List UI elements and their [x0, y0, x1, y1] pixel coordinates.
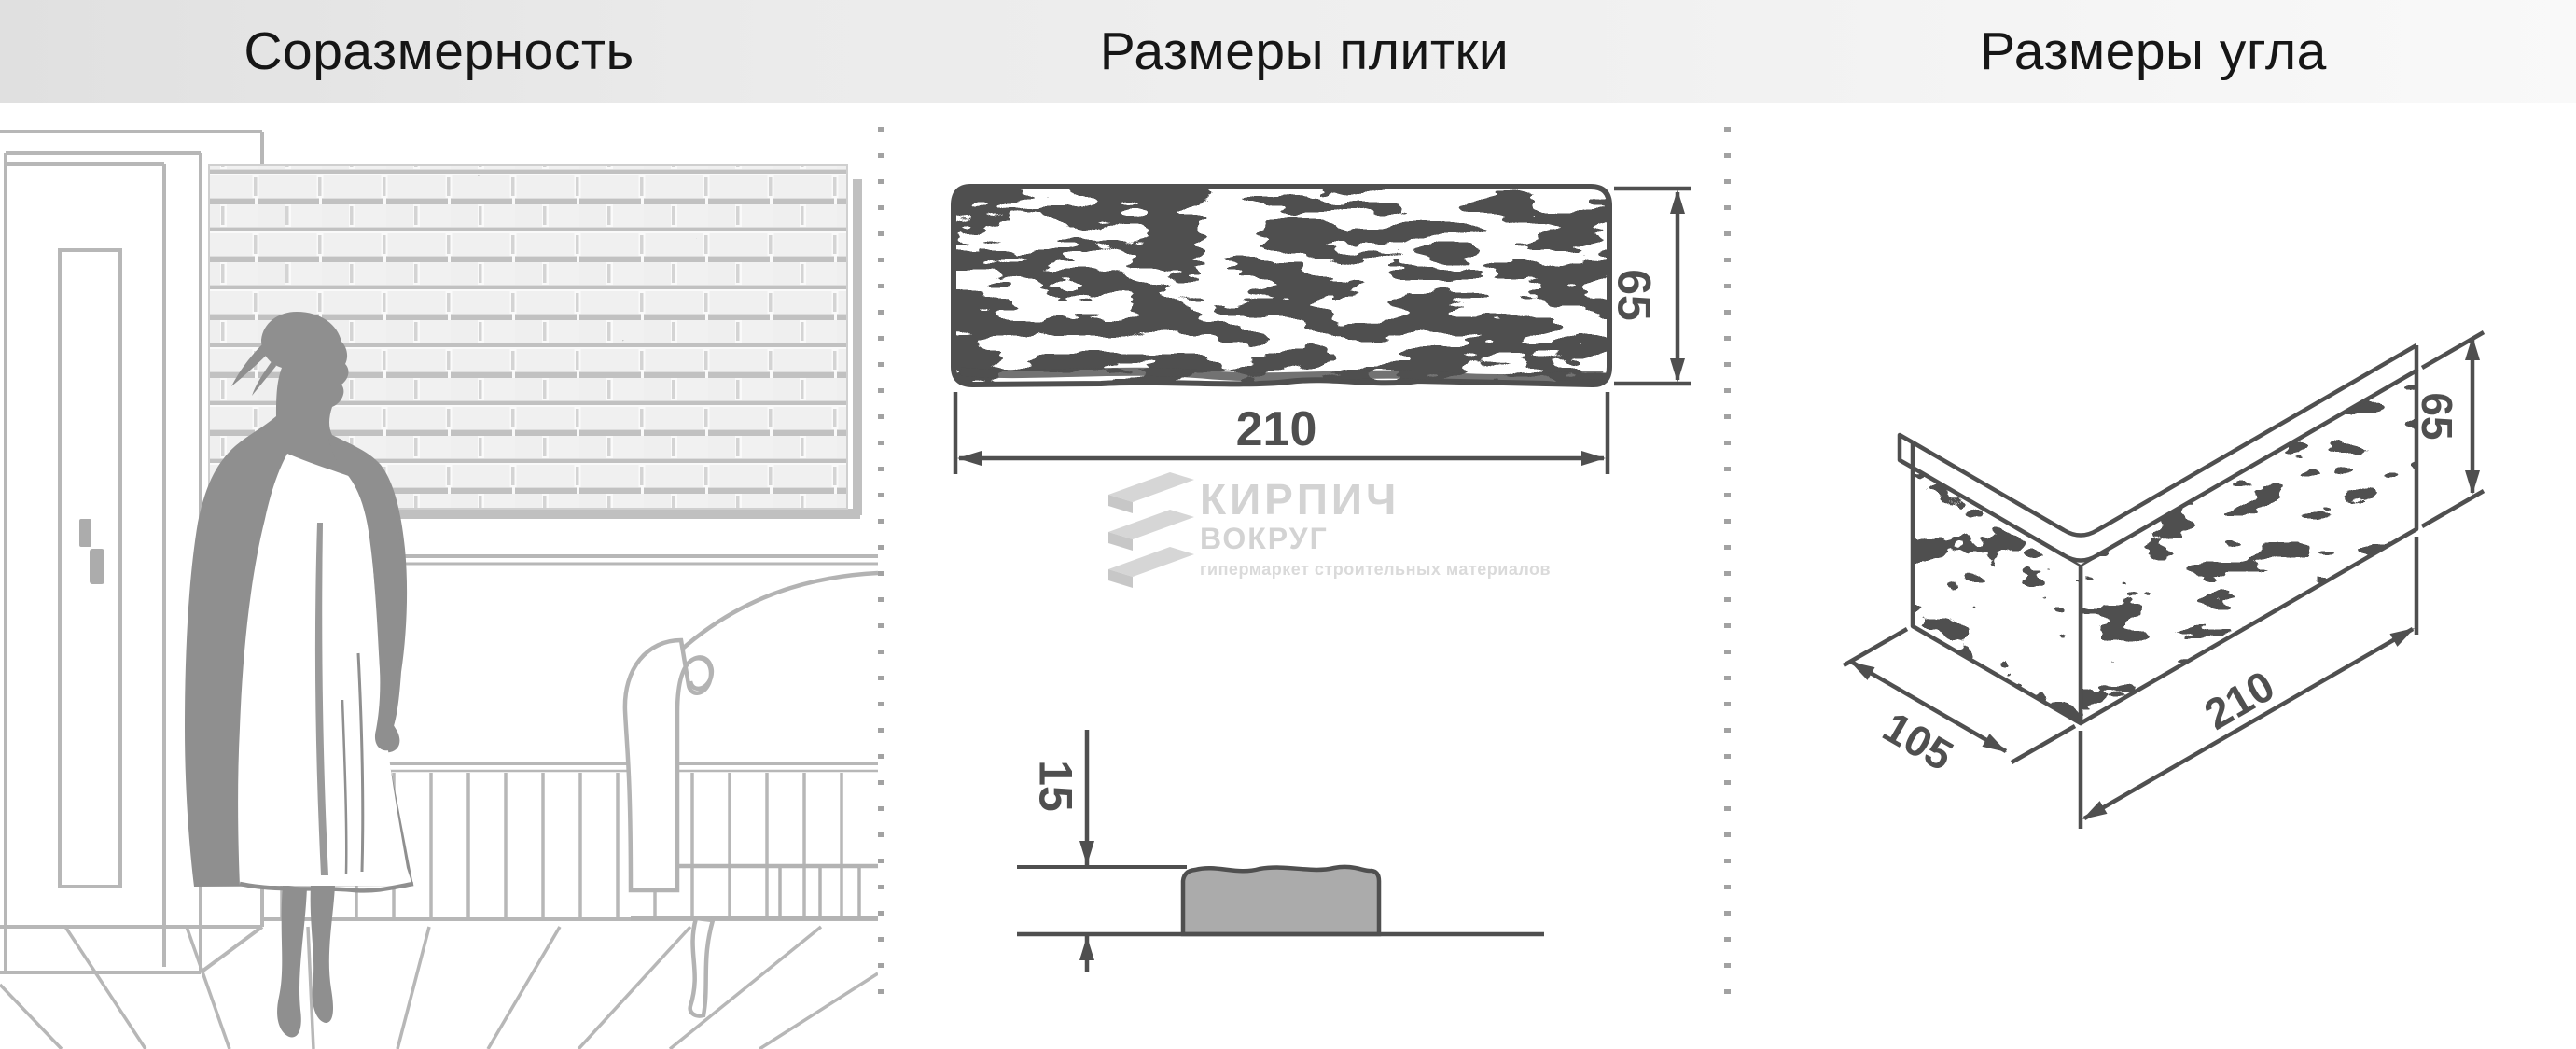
corner-return-label: 105 [1875, 702, 1961, 779]
arrowhead-up [1079, 936, 1094, 960]
panel-title-corner-sizes: Размеры угла [1731, 0, 2576, 103]
profile-cross-section [1183, 867, 1379, 934]
door-handle [79, 519, 104, 584]
brand-name-top: КИРПИЧ [1200, 475, 1399, 524]
tile-texture [954, 187, 1609, 385]
tile-face-drawing [954, 187, 1609, 385]
arrowhead-up [1670, 189, 1685, 214]
title-text: Размеры угла [1980, 21, 2327, 82]
arrowhead-lower-left [2079, 801, 2108, 826]
brand-name-bottom: ВОКРУГ [1200, 522, 1329, 555]
corner-dimensions-drawing: 65 210 105 [1732, 103, 2576, 1049]
extension-line [2012, 726, 2075, 762]
tile-profile-drawing: 15 [1017, 730, 1544, 972]
corner-height-label: 65 [2413, 392, 2461, 440]
arrowhead-left [957, 451, 982, 466]
sofa-cabriole-leg [690, 918, 713, 1016]
tile-height-label: 65 [1608, 269, 1661, 321]
brand-tagline: гипермаркет строительных материалов [1200, 560, 1551, 579]
panel-title-proportionality: Соразмерность [0, 0, 878, 103]
floor-planks [0, 927, 878, 1049]
tile-width-label: 210 [1236, 402, 1317, 456]
watermark-logo: КИРПИЧ ВОКРУГ гипермаркет строительных м… [1108, 472, 1551, 588]
profile-thickness-label: 15 [1030, 760, 1082, 812]
tile-dimensions-drawing: 65 210 КИРПИЧ ВОКРУГ гипермарк [884, 103, 1724, 1049]
silhouette-boots [277, 886, 335, 1038]
title-text: Соразмерность [244, 21, 634, 82]
arrowhead-down [1670, 358, 1685, 383]
extension-line [2422, 491, 2484, 526]
brand-bricks-icon [1108, 472, 1194, 588]
door-handle-grip [90, 549, 104, 584]
panel-separator-right [1724, 127, 1731, 1015]
corner-tile-body [1900, 345, 2416, 723]
arrowhead-lower-right [1982, 734, 2011, 759]
arrowhead-upper-right [2389, 622, 2418, 647]
sofa-back [677, 573, 878, 653]
sofa-skirt-slats [780, 866, 859, 918]
corner-length-label: 210 [2196, 661, 2282, 738]
floor-corner-line [201, 927, 262, 972]
extension-line [1844, 629, 1907, 665]
arrowhead-down [1079, 841, 1094, 865]
tile-dimensions-infographic: Соразмерность Размеры плитки Размеры угл… [0, 0, 2576, 1049]
panel-separator-left [878, 127, 884, 1015]
brick-panel-shadow-right [853, 179, 862, 515]
proportionality-scene [0, 103, 878, 1049]
arrowhead-down [2465, 470, 2480, 495]
title-text: Размеры плитки [1100, 21, 1510, 82]
panel-title-tile-sizes: Размеры плитки [878, 0, 1731, 103]
header-bar: Соразмерность Размеры плитки Размеры угл… [0, 0, 2576, 103]
arrowhead-right [1581, 451, 1606, 466]
door-lock-plate [79, 519, 91, 547]
